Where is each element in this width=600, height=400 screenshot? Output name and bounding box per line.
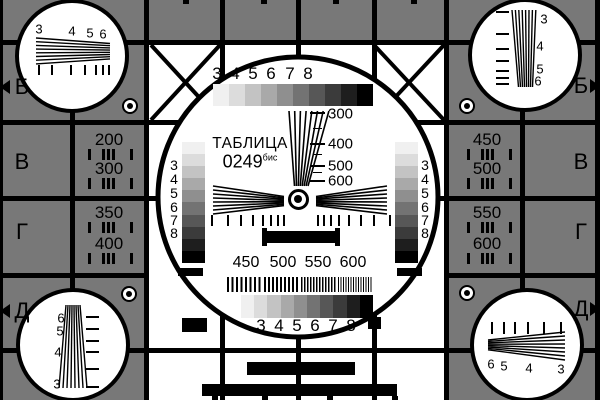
panel-left-upper-value-1: 300	[95, 159, 123, 179]
grayscale-bar-bottom-step-5	[307, 295, 320, 318]
panel-left-upper-value-0: 200	[95, 130, 123, 150]
grayscale-bar-bottom-step-9	[360, 295, 373, 318]
cut-digit-mark-bottom-1	[262, 396, 268, 400]
panel-right-upper-value-0: 450	[473, 130, 501, 150]
grayscale-staircase-left-step-0	[182, 142, 205, 154]
reference-bar-center	[266, 231, 336, 243]
bottom-bar-narrow	[247, 362, 355, 375]
wedge-tick-left-6	[277, 215, 279, 226]
corner-bl-tick-4	[86, 368, 99, 370]
panel-left-lower-row0-tick-4	[130, 222, 133, 233]
grayscale-staircase-right-step-9	[395, 251, 418, 263]
vscale-tick-long-3	[310, 180, 325, 182]
reference-rect-low-left	[182, 318, 207, 332]
corner-tr-tick-6	[496, 83, 509, 85]
bottom-scale-num-4: 4	[274, 316, 283, 336]
wedge-tick-left-2	[240, 215, 242, 226]
grayscale-bar-top-step-1	[229, 84, 245, 106]
row-label-right-Д: Д	[574, 296, 589, 322]
cut-digit-mark-top-1	[261, 0, 267, 4]
vscale-tick-long-0	[310, 112, 325, 114]
card-code-suffix: бис	[263, 153, 278, 163]
panel-left-upper-row1-tick-3	[112, 178, 115, 189]
top-scale-num-8: 8	[303, 64, 312, 84]
grayscale-staircase-right-step-4	[395, 190, 418, 202]
vscale-tick-long-2	[310, 165, 325, 167]
vscale-tick-short-2	[313, 172, 322, 174]
vscale-label-300: 300	[328, 106, 353, 123]
grayscale-bar-bottom-step-8	[347, 295, 360, 318]
corner-bl-tick-5	[86, 386, 99, 388]
grayscale-bar-bottom-step-6	[320, 295, 333, 318]
cut-digit-mark-top-0	[183, 0, 189, 4]
wedge-tick-right-6	[373, 215, 375, 226]
grayscale-bar-bottom-step-3	[281, 295, 294, 318]
panel-right-upper-row1-tick-4	[509, 178, 512, 189]
top-scale-num-4: 4	[230, 64, 239, 84]
corner-br-num-5: 5	[500, 359, 507, 374]
corner-tr-tick-1	[496, 33, 509, 35]
freq-label-600: 600	[340, 254, 367, 272]
corner-tr-tick-3	[496, 60, 509, 62]
grayscale-bar-top-step-5	[293, 84, 309, 106]
grayscale-staircase-right-step-7	[395, 227, 418, 239]
row-arrow-left-Д	[0, 304, 10, 318]
grayscale-bar-bottom-step-0	[241, 295, 254, 318]
bullseye-bottom-right-dot	[464, 290, 470, 296]
row-label-right-В: В	[574, 149, 589, 175]
grayscale-staircase-right-step-6	[395, 215, 418, 227]
bullseye-bottom-right	[459, 285, 475, 301]
corner-tr-num-3: 3	[540, 12, 547, 27]
panel-right-lower-row0-tick-0	[467, 222, 470, 233]
grayscale-bar-top-step-7	[325, 84, 341, 106]
panel-left-lower-row1-tick-3	[112, 253, 115, 264]
wedge-tick-right-3	[338, 215, 340, 226]
panel-left-upper-row1-tick-1	[102, 178, 105, 189]
vscale-tick-long-1	[310, 143, 325, 145]
burst-segment-0	[227, 277, 262, 292]
card-code: 0249бис	[223, 152, 278, 173]
corner-bl-tick-3	[86, 351, 99, 353]
bullseye-top-right	[459, 98, 475, 114]
grayscale-staircase-right	[395, 142, 418, 263]
row-arrow-right-Д	[590, 302, 600, 316]
freq-label-500: 500	[270, 254, 297, 272]
freq-label-550: 550	[305, 254, 332, 272]
panel-left-lower-row1-tick-1	[102, 253, 105, 264]
panel-right-upper-row1-tick-1	[481, 178, 484, 189]
grayscale-staircase-left-step-8	[182, 239, 205, 251]
corner-tl-num-3: 3	[35, 22, 42, 37]
bullseye-center-dot	[294, 195, 302, 203]
panel-right-lower-row1-tick-1	[481, 253, 484, 264]
panel-right-lower-row1-tick-2	[486, 253, 489, 264]
grayscale-bar-bottom-step-2	[267, 295, 280, 318]
panel-left-lower-row0-tick-1	[102, 222, 105, 233]
burst-segment-3	[338, 277, 373, 292]
row-label-left-В: В	[15, 149, 30, 175]
corner-br-tick-3	[527, 322, 529, 334]
grayscale-staircase-left-step-2	[182, 166, 205, 178]
corner-bl-tick-1	[86, 328, 99, 330]
corner-tl-tick-4	[95, 65, 97, 75]
top-scale-num-7: 7	[285, 64, 294, 84]
corner-bl-num-5: 5	[56, 324, 63, 339]
vscale-label-400: 400	[328, 136, 353, 153]
vscale-tick-short-1	[313, 154, 322, 156]
corner-br-tick-2	[514, 322, 516, 334]
row-label-left-Б: Б	[15, 74, 29, 100]
corner-tl-num-4: 4	[68, 24, 75, 39]
corner-br-num-4: 4	[525, 361, 532, 376]
burst-segment-2	[301, 277, 336, 292]
corner-bl-num-4: 4	[54, 345, 61, 360]
bullseye-top-left	[122, 98, 138, 114]
grayscale-bar-bottom-step-7	[333, 295, 346, 318]
row-label-right-Г: Г	[575, 219, 587, 245]
wedge-tick-right-2	[330, 215, 332, 226]
bullseye-bottom-left-dot	[126, 291, 132, 297]
grayscale-bar-bottom	[241, 295, 373, 318]
corner-tl-num-6: 6	[99, 27, 106, 42]
panel-right-lower-row0-tick-4	[509, 222, 512, 233]
corner-tl-tick-2	[70, 65, 72, 75]
panel-left-lower-row0-tick-0	[88, 222, 91, 233]
panel-left-lower-row0-tick-3	[112, 222, 115, 233]
content-layer: ТАБЛИЦА 0249бис БВГДБВГД2003003504004505…	[0, 0, 600, 400]
panel-right-upper-row0-tick-0	[467, 149, 470, 160]
corner-tr-tick-2	[496, 48, 509, 50]
wedge-tick-left-0	[211, 215, 213, 226]
vscale-tick-short-0	[313, 128, 322, 130]
reference-rect-low-right	[368, 317, 381, 329]
grayscale-bar-top-step-0	[213, 84, 229, 106]
bullseye-top-right-dot	[464, 103, 470, 109]
panel-left-lower-value-1: 400	[95, 234, 123, 254]
wedge-tick-left-5	[270, 215, 272, 226]
panel-left-upper-row0-tick-4	[130, 149, 133, 160]
wedge-tick-left-1	[227, 215, 229, 226]
corner-tr-num-4: 4	[536, 39, 543, 54]
bottom-scale-num-8: 8	[346, 316, 355, 336]
bullseye-top-left-dot	[127, 103, 133, 109]
panel-left-lower-row1-tick-0	[88, 253, 91, 264]
row-arrow-right-Б	[590, 79, 600, 93]
grayscale-staircase-left-step-6	[182, 215, 205, 227]
corner-br-num-3: 3	[557, 362, 564, 377]
panel-left-lower-value-0: 350	[95, 203, 123, 223]
panel-left-lower-row1-tick-2	[107, 253, 110, 264]
staircase-right-num-8: 8	[421, 225, 429, 241]
corner-tr-tick-4	[496, 70, 509, 72]
corner-tr-tick-0	[496, 11, 509, 13]
grayscale-staircase-left-step-4	[182, 190, 205, 202]
top-scale-num-6: 6	[266, 64, 275, 84]
panel-right-lower-row0-tick-3	[491, 222, 494, 233]
corner-br-tick-1	[503, 322, 505, 334]
grayscale-staircase-right-step-2	[395, 166, 418, 178]
corner-tl-tick-3	[84, 65, 86, 75]
grayscale-staircase-right-step-1	[395, 154, 418, 166]
panel-right-upper-row0-tick-4	[509, 149, 512, 160]
panel-left-upper-row1-tick-4	[130, 178, 133, 189]
panel-right-lower-row1-tick-4	[509, 253, 512, 264]
grayscale-staircase-left-step-1	[182, 154, 205, 166]
grayscale-bar-bottom-step-4	[294, 295, 307, 318]
wedge-tick-right-1	[323, 215, 325, 226]
grayscale-staircase-right-step-0	[395, 142, 418, 154]
row-label-right-Б: Б	[574, 73, 588, 99]
top-scale-num-5: 5	[248, 64, 257, 84]
corner-br-tick-0	[491, 322, 493, 334]
cut-digit-mark-bottom-2	[327, 396, 333, 400]
grayscale-bar-bottom-step-1	[254, 295, 267, 318]
corner-tl-tick-0	[38, 65, 40, 75]
corner-br-tick-4	[543, 322, 545, 334]
panel-left-upper-row1-tick-2	[107, 178, 110, 189]
bullseye-bottom-left	[121, 286, 137, 302]
panel-right-upper-row1-tick-2	[486, 178, 489, 189]
bullseye-center	[288, 189, 309, 210]
corner-tr-tick-5	[496, 77, 509, 79]
bottom-scale-num-7: 7	[328, 316, 337, 336]
grayscale-staircase-right-step-8	[395, 239, 418, 251]
grayscale-staircase-left	[182, 142, 205, 263]
grayscale-staircase-left-step-7	[182, 227, 205, 239]
wedge-tick-right-7	[389, 215, 391, 226]
bottom-scale-num-3: 3	[256, 316, 265, 336]
grayscale-bar-top-step-3	[261, 84, 277, 106]
reference-bar-cap-right	[335, 228, 340, 246]
wedge-tick-left-4	[262, 215, 264, 226]
panel-right-upper-row1-tick-3	[491, 178, 494, 189]
corner-tr-num-6: 6	[534, 74, 541, 89]
panel-right-lower-value-0: 550	[473, 203, 501, 223]
grayscale-bar-top-step-8	[341, 84, 357, 106]
corner-bl-num-3: 3	[53, 377, 60, 392]
panel-right-upper-row1-tick-0	[467, 178, 470, 189]
corner-tl-tick-1	[51, 65, 53, 75]
wedge-tick-right-5	[360, 215, 362, 226]
corner-tl-tick-5	[102, 65, 104, 75]
cut-digit-mark-bottom-3	[392, 396, 398, 400]
burst-segment-1	[264, 277, 299, 292]
top-scale-num-3: 3	[212, 64, 221, 84]
card-title: ТАБЛИЦА	[212, 135, 287, 153]
row-label-left-Д: Д	[15, 298, 30, 324]
grayscale-bar-top-step-9	[357, 84, 373, 106]
bottom-scale-num-6: 6	[310, 316, 319, 336]
grayscale-staircase-left-step-5	[182, 202, 205, 214]
cut-digit-mark-bottom-0	[212, 396, 218, 400]
panel-left-upper-row1-tick-0	[88, 178, 91, 189]
panel-right-lower-row1-tick-0	[467, 253, 470, 264]
wedge-tick-left-3	[252, 215, 254, 226]
circle-tab-right	[397, 268, 422, 276]
panel-right-upper-value-1: 500	[473, 159, 501, 179]
corner-br-tick-5	[560, 322, 562, 334]
corner-bl-tick-2	[86, 340, 99, 342]
grayscale-staircase-left-step-3	[182, 178, 205, 190]
test-card: ТАБЛИЦА 0249бис БВГДБВГД2003003504004505…	[0, 0, 600, 400]
panel-right-lower-row0-tick-1	[481, 222, 484, 233]
cut-digit-mark-top-2	[333, 0, 339, 4]
grayscale-staircase-left-step-9	[182, 251, 205, 263]
staircase-left-num-8: 8	[170, 225, 178, 241]
panel-left-upper-row0-tick-0	[88, 149, 91, 160]
circle-tab-left	[178, 268, 203, 276]
bottom-bar-wide	[202, 384, 397, 396]
grayscale-staircase-right-step-3	[395, 178, 418, 190]
grayscale-bar-top-step-2	[245, 84, 261, 106]
panel-right-lower-row1-tick-3	[491, 253, 494, 264]
wedge-tick-right-0	[317, 215, 319, 226]
freq-label-450: 450	[233, 254, 260, 272]
corner-tl-num-5: 5	[86, 26, 93, 41]
wedge-tick-right-4	[348, 215, 350, 226]
bottom-scale-num-5: 5	[292, 316, 301, 336]
vscale-label-600: 600	[328, 173, 353, 190]
grayscale-staircase-right-step-5	[395, 202, 418, 214]
panel-right-lower-row0-tick-2	[486, 222, 489, 233]
corner-tl-tick-6	[108, 65, 110, 75]
panel-right-lower-value-1: 600	[473, 234, 501, 254]
grayscale-bar-top-step-4	[277, 84, 293, 106]
grayscale-bar-top-step-6	[309, 84, 325, 106]
corner-bl-tick-0	[86, 316, 99, 318]
corner-br-num-6: 6	[487, 357, 494, 372]
reference-bar-cap-left	[262, 228, 267, 246]
cut-digit-mark-top-3	[411, 0, 417, 4]
row-label-left-Г: Г	[16, 219, 28, 245]
row-arrow-left-Б	[0, 80, 10, 94]
grayscale-bar-top	[213, 84, 373, 106]
panel-left-lower-row1-tick-4	[130, 253, 133, 264]
wedge-tick-left-7	[283, 215, 285, 226]
panel-left-lower-row0-tick-2	[107, 222, 110, 233]
